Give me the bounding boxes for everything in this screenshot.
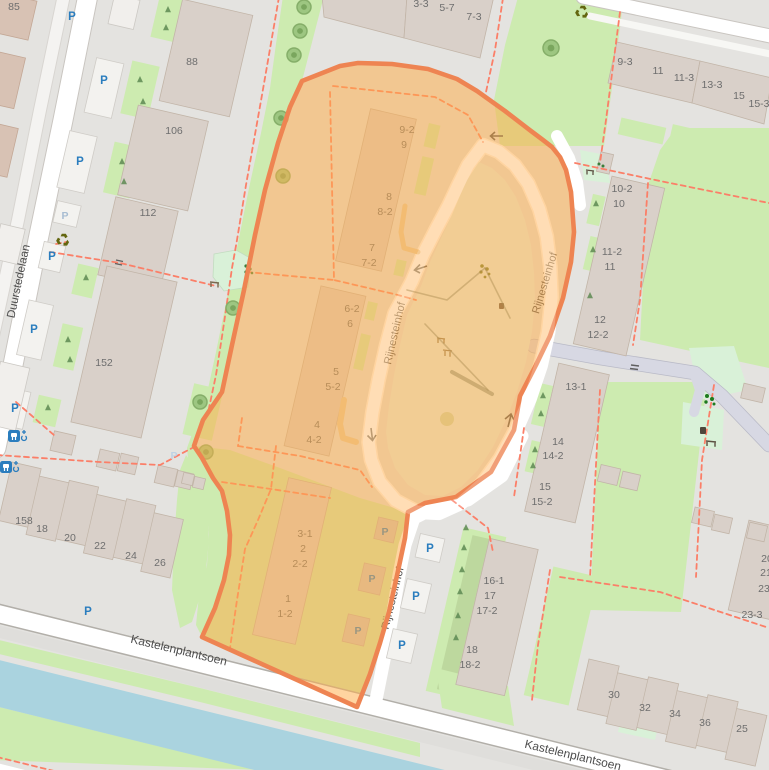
svg-text:11: 11 (653, 65, 664, 77)
svg-text:20: 20 (64, 532, 76, 544)
svg-text:15-3: 15-3 (748, 98, 769, 110)
svg-text:20: 20 (761, 553, 769, 565)
svg-text:106: 106 (165, 125, 183, 137)
svg-text:18-2: 18-2 (459, 659, 480, 671)
svg-text:5-7: 5-7 (439, 2, 454, 14)
svg-text:P: P (11, 403, 19, 415)
svg-text:13-1: 13-1 (565, 381, 586, 393)
svg-text:17: 17 (484, 590, 496, 602)
svg-text:25: 25 (736, 723, 748, 735)
svg-text:30: 30 (608, 689, 620, 701)
svg-text:36: 36 (699, 717, 711, 729)
svg-text:26: 26 (154, 557, 166, 569)
svg-text:23-3: 23-3 (741, 609, 762, 621)
svg-text:158: 158 (15, 515, 33, 527)
svg-text:17-2: 17-2 (476, 605, 497, 617)
svg-text:18: 18 (466, 644, 478, 656)
svg-text:11: 11 (605, 261, 616, 273)
svg-text:P: P (426, 543, 434, 555)
svg-text:12-2: 12-2 (587, 329, 608, 341)
svg-text:3-3: 3-3 (413, 0, 428, 10)
svg-text:34: 34 (669, 708, 681, 720)
svg-text:P: P (100, 75, 108, 87)
svg-text:11-3: 11-3 (674, 72, 694, 84)
svg-text:10: 10 (613, 198, 625, 210)
svg-text:10-2: 10-2 (611, 183, 632, 195)
svg-text:13-3: 13-3 (701, 79, 722, 91)
svg-text:11-2: 11-2 (602, 246, 622, 258)
svg-text:7-3: 7-3 (466, 11, 481, 23)
svg-text:21: 21 (760, 567, 769, 579)
svg-text:P: P (76, 156, 84, 168)
svg-text:15-2: 15-2 (531, 496, 552, 508)
svg-text:24: 24 (125, 550, 137, 562)
svg-text:14-2: 14-2 (542, 450, 563, 462)
svg-text:16-1: 16-1 (483, 575, 504, 587)
svg-text:18: 18 (36, 523, 48, 535)
svg-text:P: P (30, 324, 38, 336)
svg-text:P: P (61, 210, 68, 222)
svg-text:22: 22 (94, 540, 106, 552)
svg-text:P: P (68, 11, 76, 23)
svg-text:P: P (84, 606, 92, 618)
svg-text:152: 152 (95, 357, 113, 369)
svg-text:88: 88 (186, 56, 198, 68)
svg-text:9-3: 9-3 (617, 56, 632, 68)
svg-text:14: 14 (552, 436, 564, 448)
svg-text:112: 112 (140, 207, 157, 219)
svg-text:P: P (412, 591, 420, 603)
svg-text:15: 15 (539, 481, 551, 493)
svg-text:23: 23 (758, 583, 769, 595)
svg-text:P: P (170, 450, 177, 462)
svg-text:P: P (398, 640, 406, 652)
svg-text:P: P (48, 251, 56, 263)
svg-text:85: 85 (8, 1, 20, 13)
svg-text:32: 32 (639, 702, 651, 714)
svg-text:15: 15 (733, 90, 745, 102)
svg-text:12: 12 (594, 314, 606, 326)
